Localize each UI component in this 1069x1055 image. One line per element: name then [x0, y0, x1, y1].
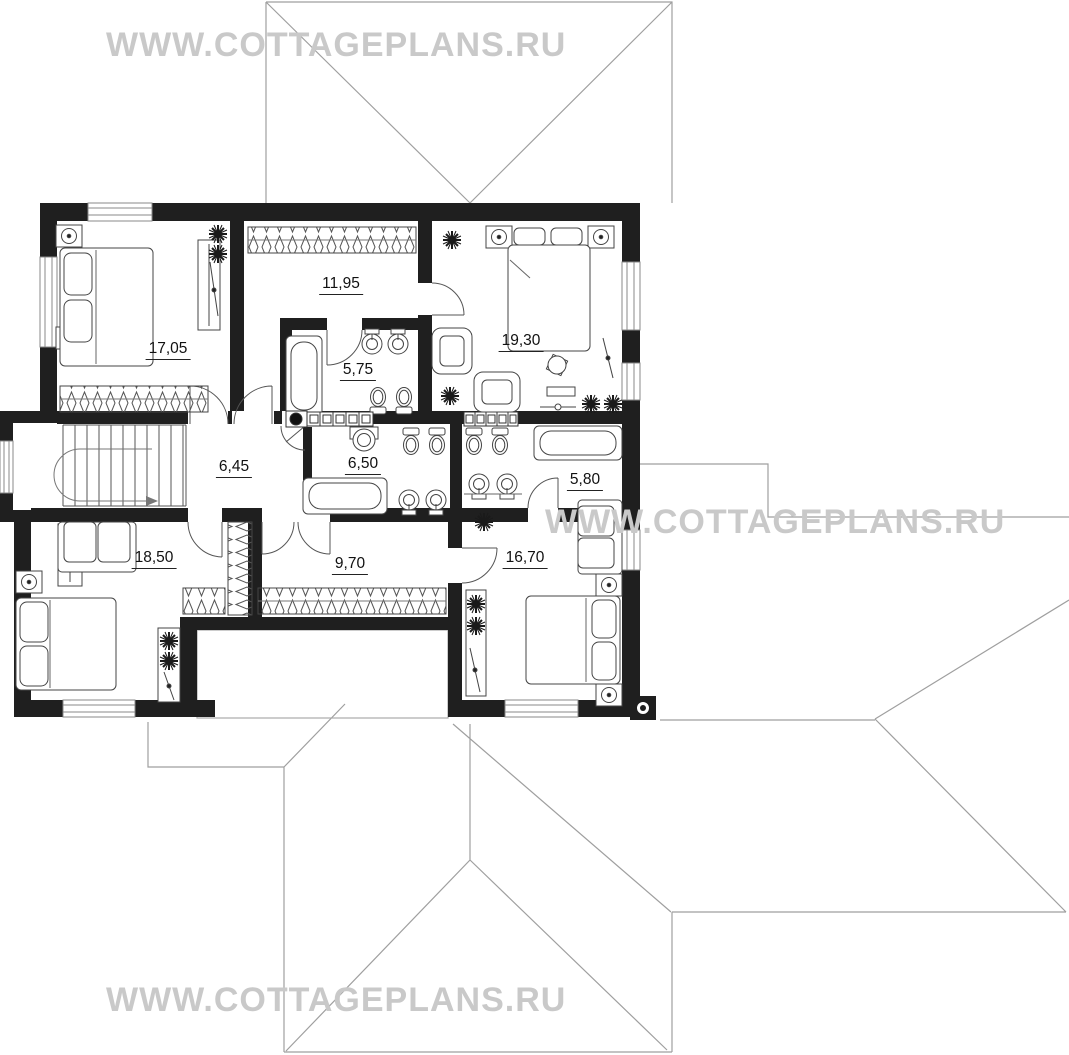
pillow	[551, 228, 582, 245]
pillow	[64, 300, 92, 342]
plant-icon	[443, 231, 461, 249]
nightstand	[56, 225, 82, 247]
sink	[469, 474, 489, 499]
sink	[399, 490, 419, 515]
toilet	[466, 428, 482, 455]
watermark-bottom: WWW.COTTAGEPLANS.RU	[106, 981, 566, 1020]
sink	[388, 329, 408, 354]
door-wardrobe-right	[298, 522, 330, 554]
staircase	[54, 425, 186, 506]
sink	[426, 490, 446, 515]
window	[622, 363, 640, 400]
console	[540, 404, 576, 410]
toilet	[370, 388, 386, 415]
window	[88, 203, 152, 221]
cheval-mirror	[603, 338, 613, 378]
wardrobe-rail	[228, 522, 252, 615]
room-area-label: 18,50	[132, 549, 177, 569]
washing-machine	[286, 411, 307, 427]
room-area-label: 5,80	[567, 471, 603, 491]
plant-icon	[582, 395, 600, 413]
room-area-label: 6,50	[345, 455, 381, 475]
roof-right-wing	[640, 464, 1069, 1052]
door-bedroom-lower-left	[188, 522, 222, 557]
window	[40, 257, 57, 347]
wardrobe-rail	[183, 588, 225, 614]
watermark-top: WWW.COTTAGEPLANS.RU	[106, 26, 566, 65]
room-area-label: 9,70	[332, 555, 368, 575]
toilet	[492, 428, 508, 455]
toilet	[396, 388, 412, 415]
door-bedroom-upper-right	[432, 283, 464, 315]
nightstand	[486, 226, 512, 248]
sink	[362, 329, 382, 354]
bedroom-upper-right-furniture	[432, 226, 622, 413]
side-table	[546, 354, 567, 375]
window	[0, 441, 13, 493]
sofa	[58, 522, 136, 572]
floor-plan-page: WWW.COTTAGEPLANS.RU WWW.COTTAGEPLANS.RU …	[0, 0, 1069, 1055]
room-area-label: 16,70	[503, 549, 548, 569]
pillow	[514, 228, 545, 245]
toilet	[403, 428, 419, 455]
window	[63, 700, 135, 717]
room-area-label: 5,75	[340, 361, 376, 381]
room-area-label: 11,95	[319, 275, 363, 295]
tv-stand	[547, 387, 575, 396]
room-area-label: 17,05	[146, 340, 191, 360]
door-bathroom-middle	[281, 426, 305, 450]
pillow	[20, 602, 48, 642]
nightstand	[588, 226, 614, 248]
pillow	[64, 253, 92, 295]
door-wardrobe-left	[262, 522, 294, 554]
nightstand	[596, 574, 622, 596]
stairs-direction-arrow	[54, 449, 152, 501]
terrace-outline	[197, 630, 448, 718]
pillow	[592, 642, 616, 680]
watermark-middle: WWW.COTTAGEPLANS.RU	[545, 503, 1005, 542]
bedroom-upper-left-furniture	[56, 225, 227, 366]
nightstand	[596, 684, 622, 706]
chimney-flue-core	[640, 705, 646, 711]
sink	[497, 474, 517, 499]
door-bedroom-lower-right	[462, 548, 497, 583]
window	[622, 262, 640, 330]
plant-icon	[441, 387, 459, 405]
room-area-label: 19,30	[499, 332, 544, 352]
toilet	[429, 428, 445, 455]
room-area-label: 6,45	[216, 458, 252, 478]
door-bathroom-top	[327, 330, 362, 365]
nightstand	[16, 571, 42, 593]
pillow	[592, 600, 616, 638]
pillow	[20, 646, 48, 686]
plant-icon	[604, 395, 622, 413]
stairs-arrow-head	[146, 496, 158, 506]
window	[505, 700, 578, 717]
